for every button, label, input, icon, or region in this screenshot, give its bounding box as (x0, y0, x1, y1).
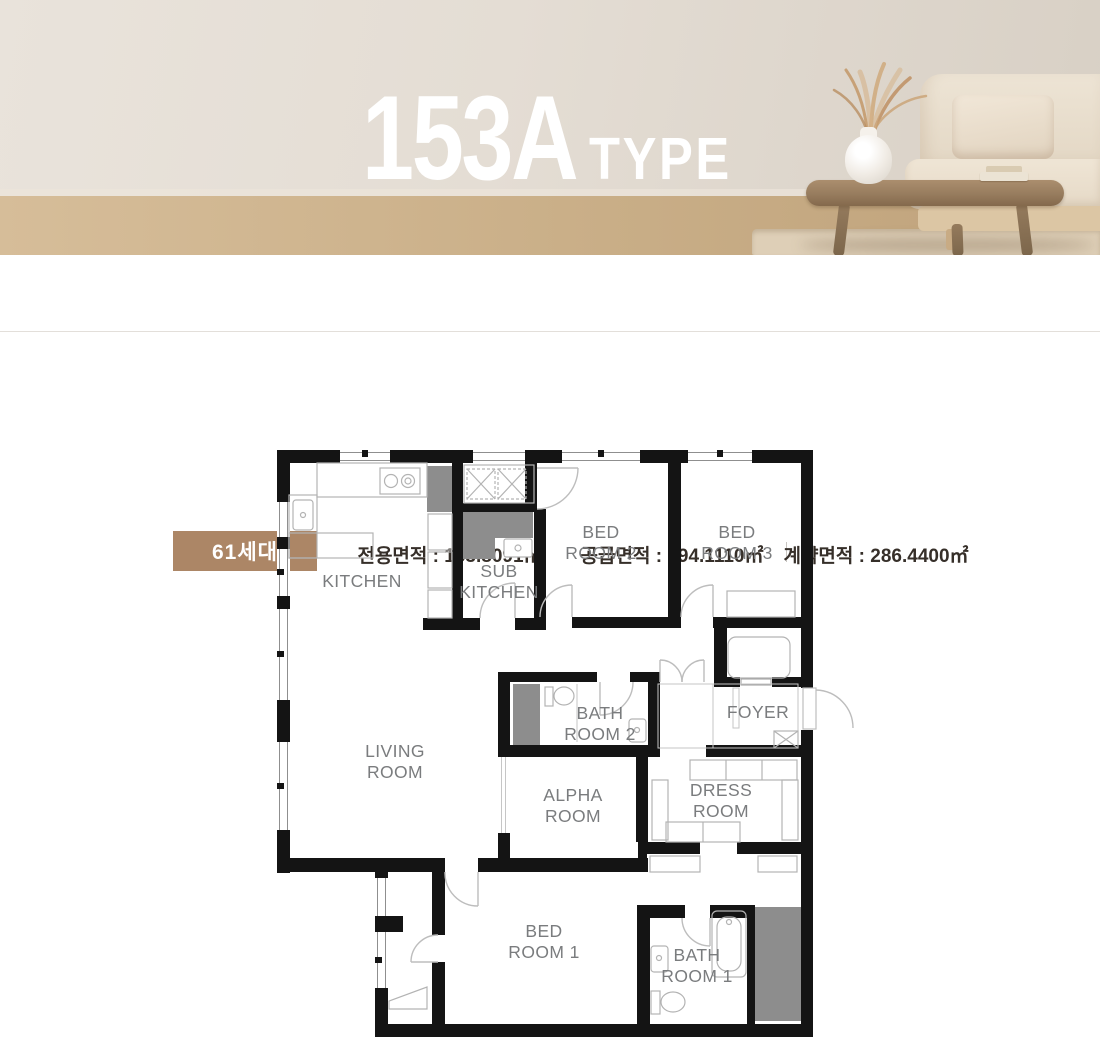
room-label-alpha: ALPHA (543, 785, 602, 805)
balcony-detail (389, 987, 427, 1009)
room-label-bedroom2: ROOM 2 (565, 543, 636, 563)
wardrobe-icon (727, 591, 795, 617)
fridge-icon (467, 469, 526, 499)
book (980, 172, 1028, 181)
room-label-foyer: FOYER (727, 702, 789, 722)
elevator-icon (728, 637, 790, 678)
stove-icon (380, 468, 420, 494)
room-label-bedroom3: BED (718, 522, 755, 542)
toilet-icon (545, 687, 574, 706)
sofa-pillow (952, 95, 1054, 159)
room-label-bedroom3: ROOM 3 (701, 543, 772, 563)
room-label-bathroom2: BATH (577, 703, 624, 723)
vase (845, 135, 892, 184)
sub-kitchen-sink (504, 539, 532, 557)
pampas-grass (822, 56, 942, 148)
room-label-bedroom1: BED (525, 921, 562, 941)
room-label-bathroom1: ROOM 1 (661, 966, 732, 986)
coffee-table (806, 180, 1064, 206)
room-label-living: ROOM (367, 762, 423, 782)
table-leg (951, 224, 963, 255)
room-label-bedroom1: ROOM 1 (508, 942, 579, 962)
room-label-bathroom2: ROOM 2 (564, 724, 635, 744)
page: 153A TYPE 61세대 전용면적 : 153.8091㎡ 공급면적 : 1… (0, 0, 1100, 1060)
room-label-bathroom1: BATH (674, 945, 721, 965)
room-label-alpha: ROOM (545, 806, 601, 826)
unit-type-title: 153A (362, 88, 576, 188)
room-label-sub-kitchen: SUB (480, 561, 517, 581)
unit-type-suffix: TYPE (589, 109, 732, 209)
sofa-frame (918, 206, 1100, 231)
room-label-living: LIVING (365, 741, 425, 761)
toilet-icon (651, 991, 685, 1014)
page-title: 153A TYPE (362, 88, 755, 209)
room-label-sub-kitchen: KITCHEN (459, 582, 539, 602)
room-label-kitchen: KITCHEN (322, 571, 402, 591)
floor-plan: KITCHEN SUB KITCHEN BED ROOM 2 BED ROOM … (270, 443, 860, 1043)
hero-banner: 153A TYPE (0, 0, 1100, 255)
kitchen-sink (293, 500, 313, 530)
room-label-dress: DRESS (690, 780, 752, 800)
unit-info-bar: 61세대 전용면적 : 153.8091㎡ 공급면적 : 194.1110㎡ 계… (0, 255, 1100, 332)
contract-area-value: 286.4400㎡ (870, 546, 968, 567)
room-label-dress: ROOM (693, 801, 749, 821)
room-label-bedroom2: BED (582, 522, 619, 542)
